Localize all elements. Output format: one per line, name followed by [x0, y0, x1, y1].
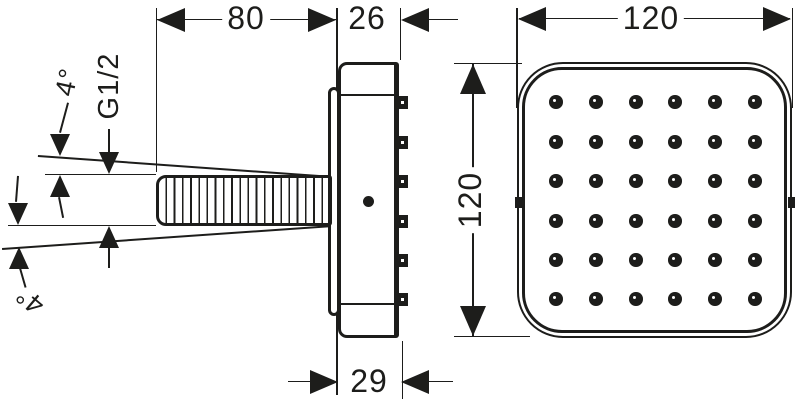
nozzle-dot — [549, 253, 563, 267]
dim-label-front-height: 120 — [454, 167, 488, 233]
side-nozzle-nub — [398, 175, 408, 188]
body-cap-line-top — [340, 94, 397, 96]
nozzle-dot — [629, 253, 643, 267]
nozzle-dot — [549, 174, 563, 188]
dim-label-base-depth: 29 — [345, 365, 393, 399]
tilt-down-arrow-up — [9, 247, 29, 269]
nozzle-dot — [668, 214, 682, 228]
side-nozzle-nub — [398, 136, 408, 149]
thread-label: G1/2 — [94, 48, 124, 125]
nozzle-dot — [589, 174, 603, 188]
nozzle-dot — [668, 174, 682, 188]
nozzle-dot — [589, 135, 603, 149]
arrowhead-80-right — [308, 8, 336, 32]
nozzle-dot — [668, 253, 682, 267]
nozzle-dot — [748, 214, 762, 228]
clip-notch-left — [515, 197, 522, 208]
clip-notch-right — [788, 197, 795, 208]
nozzle-dot — [748, 253, 762, 267]
nozzle-dot — [708, 174, 722, 188]
nozzle-dot — [589, 214, 603, 228]
arrowhead-120v-bottom — [460, 306, 486, 336]
nozzle-dot — [549, 135, 563, 149]
nozzle-dot — [708, 253, 722, 267]
arrowhead-29-left — [310, 370, 338, 394]
thread-arrow-up — [99, 226, 119, 248]
tilt-down-arrow-down — [8, 203, 28, 225]
nozzle-dot — [589, 95, 603, 109]
side-nozzle-nub — [398, 293, 408, 306]
nozzle-dot — [629, 214, 643, 228]
dim-label-front-width: 120 — [618, 2, 684, 36]
nozzle-dot — [668, 292, 682, 306]
nozzle-dot — [668, 135, 682, 149]
nozzle-dot — [708, 292, 722, 306]
thread-arrow-down — [99, 152, 119, 174]
nozzle-dot — [629, 95, 643, 109]
side-nozzle-nub — [398, 254, 408, 267]
nozzle-dot — [748, 174, 762, 188]
nozzle-dot — [589, 253, 603, 267]
arrowhead-26-right — [401, 8, 429, 32]
nozzle-dot — [549, 214, 563, 228]
body-cap-line-bottom — [340, 303, 397, 305]
nozzle-dot — [549, 95, 563, 109]
nozzle-dot — [549, 292, 563, 306]
nozzle-dot — [748, 135, 762, 149]
nozzle-dot — [629, 174, 643, 188]
tilt-up-arrow-up — [50, 175, 70, 197]
ribbed-spray-arm — [156, 175, 332, 226]
nozzle-dot — [629, 292, 643, 306]
side-nozzle-nub — [398, 215, 408, 228]
side-nozzle-nub — [398, 96, 408, 109]
face-plate-inner-contour — [522, 67, 787, 333]
dim-label-depth: 26 — [343, 2, 391, 36]
arrowhead-80-left — [157, 8, 185, 32]
nozzle-dot — [708, 135, 722, 149]
dim-label-width: 80 — [222, 2, 270, 36]
nozzle-dot — [629, 135, 643, 149]
nozzle-dot — [748, 292, 762, 306]
technical-drawing: 80 26 29 G1/2 4° 4° — [0, 0, 800, 403]
nozzle-dot — [589, 292, 603, 306]
extension-line-front-right — [792, 8, 794, 108]
pivot-center-dot — [363, 196, 374, 207]
extension-line-front-bottom — [454, 336, 530, 338]
arrowhead-120top-left — [518, 7, 546, 31]
nozzle-dot — [708, 95, 722, 109]
nozzle-dot — [708, 214, 722, 228]
arrowhead-120top-right — [763, 7, 791, 31]
tilt-up-arrow-down — [50, 134, 70, 156]
arrowhead-120v-top — [460, 64, 486, 94]
arrowhead-29-right — [401, 370, 429, 394]
nozzle-dot — [748, 95, 762, 109]
nozzle-dot — [668, 95, 682, 109]
